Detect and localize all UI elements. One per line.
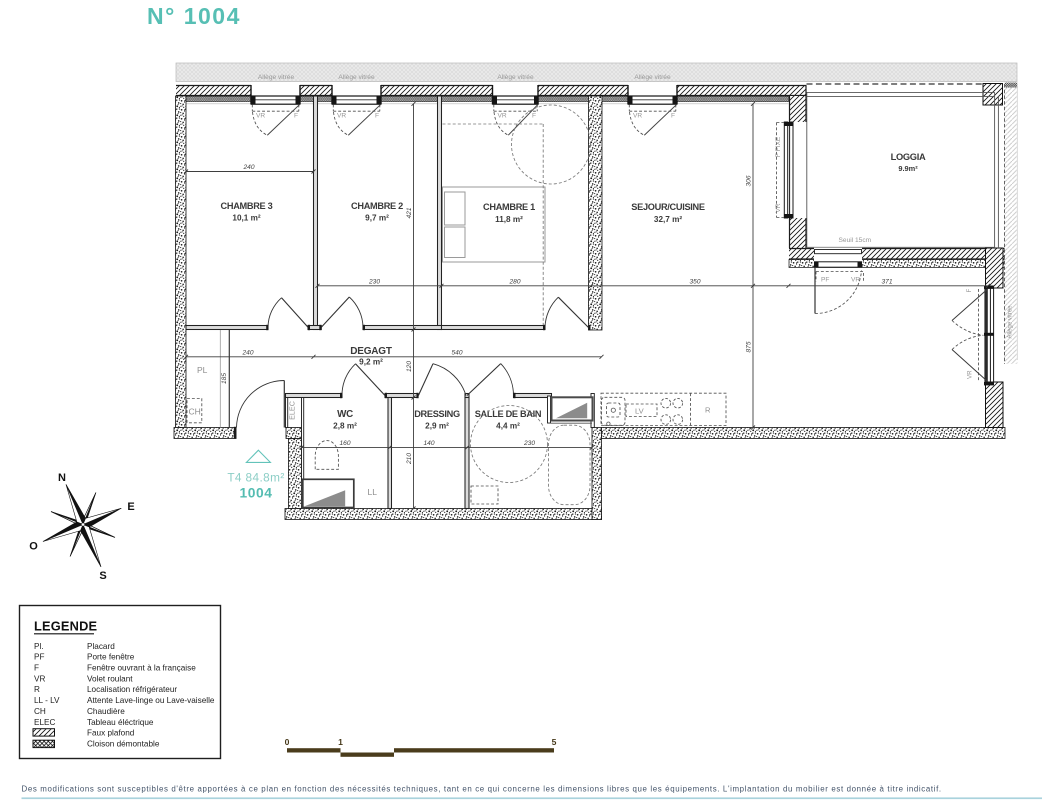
svg-text:32,7 m²: 32,7 m² xyxy=(654,215,682,224)
svg-text:ELEC: ELEC xyxy=(34,718,55,727)
svg-text:371: 371 xyxy=(881,278,892,285)
svg-text:Allège vitrée: Allège vitrée xyxy=(1008,305,1014,339)
svg-text:LEGENDE: LEGENDE xyxy=(34,619,98,634)
svg-text:CH: CH xyxy=(189,407,201,417)
svg-text:540: 540 xyxy=(451,349,462,356)
svg-text:PL: PL xyxy=(197,365,208,375)
svg-text:230: 230 xyxy=(368,278,380,285)
svg-text:230: 230 xyxy=(523,440,535,447)
svg-text:PF: PF xyxy=(34,653,44,662)
svg-text:R: R xyxy=(705,406,711,415)
svg-text:Porte fenêtre: Porte fenêtre xyxy=(87,653,135,662)
svg-text:0: 0 xyxy=(285,737,290,747)
svg-text:875: 875 xyxy=(746,341,753,352)
svg-text:1004: 1004 xyxy=(239,486,272,501)
svg-text:Fenêtre ouvrant à la française: Fenêtre ouvrant à la française xyxy=(87,664,196,673)
svg-text:ELEC: ELEC xyxy=(288,401,297,420)
svg-text:Volet roulant: Volet roulant xyxy=(87,674,133,683)
svg-text:F: F xyxy=(34,664,39,673)
svg-text:E: E xyxy=(127,501,134,513)
svg-text:N° 1004: N° 1004 xyxy=(147,3,241,29)
svg-text:DRESSING: DRESSING xyxy=(414,409,460,419)
svg-text:Allège vitrée: Allège vitrée xyxy=(634,74,671,81)
svg-text:CHAMBRE 1: CHAMBRE 1 xyxy=(483,202,535,212)
svg-text:F: F xyxy=(966,289,973,293)
svg-text:Placard: Placard xyxy=(87,642,115,651)
svg-text:F: F xyxy=(294,113,298,120)
svg-text:185: 185 xyxy=(221,373,228,384)
svg-text:VR: VR xyxy=(967,370,974,379)
svg-text:Allège vitrée: Allège vitrée xyxy=(497,74,534,81)
svg-text:VR: VR xyxy=(337,113,346,120)
svg-text:CHAMBRE 2: CHAMBRE 2 xyxy=(351,201,403,211)
svg-text:DEGAGT: DEGAGT xyxy=(350,346,392,357)
svg-text:Attente Lave-linge ou Lave-vai: Attente Lave-linge ou Lave-vaiselle xyxy=(87,696,215,705)
svg-text:9,2 m²: 9,2 m² xyxy=(359,358,383,367)
svg-text:2,8 m²: 2,8 m² xyxy=(333,422,357,431)
svg-text:Allège vitrée: Allège vitrée xyxy=(338,74,375,81)
svg-text:Tableau éléctrique: Tableau éléctrique xyxy=(87,718,154,727)
svg-text:140: 140 xyxy=(423,440,434,447)
svg-text:VR: VR xyxy=(256,113,265,120)
svg-text:11,8 m²: 11,8 m² xyxy=(495,215,523,224)
svg-text:N: N xyxy=(58,472,66,484)
svg-text:Des modifications sont suscept: Des modifications sont susceptibles d'êt… xyxy=(22,785,942,794)
svg-text:4,4 m²: 4,4 m² xyxy=(496,422,520,431)
svg-text:Pl.: Pl. xyxy=(34,642,44,651)
svg-text:1: 1 xyxy=(338,737,343,747)
svg-text:306: 306 xyxy=(746,175,753,186)
svg-text:R: R xyxy=(34,685,40,694)
svg-text:VR: VR xyxy=(633,113,642,120)
svg-text:PF: PF xyxy=(821,277,829,284)
svg-text:CH: CH xyxy=(34,707,46,716)
svg-text:2,9 m²: 2,9 m² xyxy=(425,422,449,431)
svg-text:9,7 m²: 9,7 m² xyxy=(365,214,389,223)
svg-text:240: 240 xyxy=(242,164,254,171)
svg-text:CHAMBRE 3: CHAMBRE 3 xyxy=(221,201,273,211)
svg-text:9.9m²: 9.9m² xyxy=(898,164,918,173)
svg-text:10,1 m²: 10,1 m² xyxy=(232,214,260,223)
svg-text:F: F xyxy=(671,113,675,120)
svg-text:VR: VR xyxy=(851,277,860,284)
svg-text:SEJOUR/CUISINE: SEJOUR/CUISINE xyxy=(631,202,705,212)
svg-text:LV: LV xyxy=(635,407,645,416)
svg-text:Faux plafond: Faux plafond xyxy=(87,729,135,738)
svg-text:240: 240 xyxy=(241,349,253,356)
svg-text:Allège vitrée: Allège vitrée xyxy=(258,74,295,81)
svg-text:LOGGIA: LOGGIA xyxy=(891,152,926,162)
svg-text:210: 210 xyxy=(406,453,413,465)
svg-text:Localisation réfrigérateur: Localisation réfrigérateur xyxy=(87,685,177,694)
svg-text:T4 84.8m²: T4 84.8m² xyxy=(227,471,284,485)
svg-text:421: 421 xyxy=(406,207,413,218)
svg-text:F: F xyxy=(532,113,536,120)
svg-text:Cloison démontable: Cloison démontable xyxy=(87,740,160,749)
svg-text:5: 5 xyxy=(552,737,557,747)
svg-text:F: F xyxy=(375,113,379,120)
svg-text:WC: WC xyxy=(337,409,353,420)
svg-text:LL - LV: LL - LV xyxy=(34,696,60,705)
svg-text:VR: VR xyxy=(34,674,45,683)
svg-text:O: O xyxy=(29,541,38,553)
svg-text:VR: VR xyxy=(498,113,507,120)
svg-text:F FIXE: F FIXE xyxy=(775,136,782,157)
svg-text:350: 350 xyxy=(689,278,700,285)
svg-text:120: 120 xyxy=(406,361,413,372)
svg-text:VR: VR xyxy=(775,203,782,212)
svg-text:S: S xyxy=(99,570,106,582)
svg-text:Chaudière: Chaudière xyxy=(87,707,125,716)
svg-text:280: 280 xyxy=(508,278,520,285)
svg-text:Seuil 15cm: Seuil 15cm xyxy=(839,237,872,244)
svg-text:LL: LL xyxy=(368,487,378,497)
svg-text:160: 160 xyxy=(339,440,350,447)
